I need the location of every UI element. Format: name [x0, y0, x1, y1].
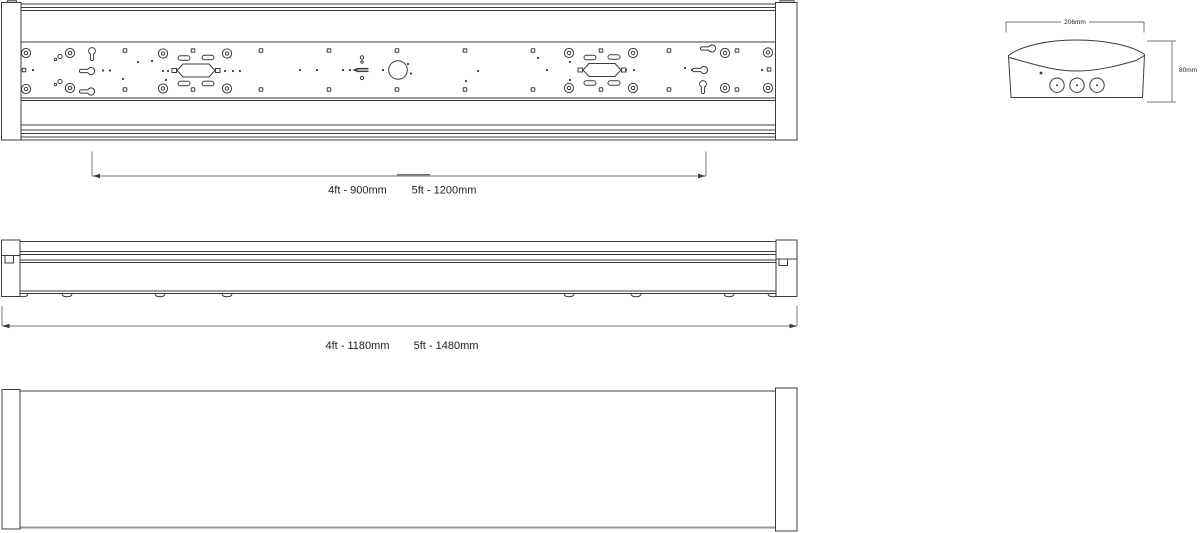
side-right-endcap — [776, 240, 797, 297]
end-view: 206mm 80mm — [1006, 19, 1197, 102]
plan-dim-4ft-label: 4ft - 900mm — [328, 185, 387, 197]
arrow-left-icon — [93, 174, 101, 179]
bottom-view — [2, 388, 797, 531]
end-height-label: 80mm — [1179, 67, 1197, 74]
plan-view — [2, 1, 798, 140]
side-dim-4ft-label: 4ft - 1180mm — [326, 340, 390, 352]
side-view-dimension: 4ft - 1180mm 5ft - 1480mm — [2, 306, 797, 352]
plan-body — [21, 4, 776, 140]
end-view-height-dim — [1147, 41, 1176, 102]
plan-right-endcap — [776, 3, 798, 141]
plan-dim-5ft-label: 5ft - 1200mm — [412, 185, 477, 197]
drawing-sheet: 4ft - 900mm 5ft - 1200mm 206mm 80mm — [0, 0, 1200, 533]
end-view-gland-dots — [1040, 72, 1098, 87]
side-dim-5ft-label: 5ft - 1480mm — [414, 340, 479, 352]
bottom-right-endcap — [776, 388, 798, 531]
side-body — [20, 242, 776, 294]
end-view-housing — [1009, 40, 1145, 98]
end-width-label: 206mm — [1064, 19, 1086, 26]
bottom-left-endcap — [2, 390, 20, 530]
center-cable-entry — [389, 61, 408, 80]
bottom-body — [20, 391, 776, 527]
hole-pattern — [21, 45, 772, 95]
technical-drawing: 4ft - 900mm 5ft - 1200mm 206mm 80mm — [0, 0, 1200, 533]
arrow-right-icon — [790, 324, 798, 329]
plan-view-dimension: 4ft - 900mm 5ft - 1200mm — [92, 152, 706, 197]
end-view-diffuser-line — [1009, 56, 1145, 72]
arrow-left-icon — [2, 324, 10, 329]
slot-cluster-left — [158, 49, 231, 93]
plan-left-endcap — [2, 3, 22, 141]
side-view — [2, 240, 798, 297]
side-left-endcap — [2, 240, 21, 297]
arrow-right-icon — [698, 174, 706, 179]
terminal-block-mark — [353, 68, 369, 72]
